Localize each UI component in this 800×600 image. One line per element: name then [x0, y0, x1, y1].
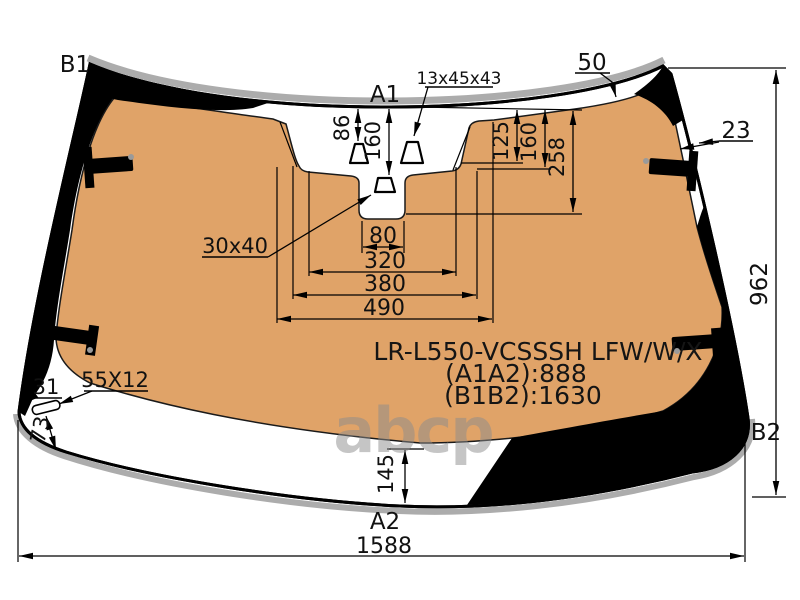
bracket-pin-top-right	[643, 158, 649, 164]
dim-cam-step1: 125	[489, 121, 513, 161]
bracket-pin-bottom-left	[87, 347, 93, 353]
dim-mirror-offset: 160	[361, 121, 385, 161]
dim-slot-width: 80	[369, 224, 397, 249]
dim-cam-step2: 160	[517, 122, 541, 162]
dim-sensor-size: 13x45x43	[416, 69, 501, 89]
marker-a2: A2	[370, 509, 400, 535]
dim-bracket-size: 55X12	[81, 368, 149, 392]
marker-b2: B2	[751, 420, 781, 446]
marker-b1: B1	[60, 52, 90, 78]
dim-width-320: 320	[364, 249, 406, 274]
dim-width-bottom: 1588	[356, 534, 412, 559]
dim-mirror-size: 30x40	[202, 234, 268, 258]
marker-a1: A1	[370, 82, 400, 108]
dim-sensor-offset: 86	[330, 115, 354, 142]
dim-width-380: 380	[364, 272, 406, 297]
watermark: abcp	[333, 394, 492, 467]
dim-width-490: 490	[363, 296, 405, 321]
dim-top-edge-offset: 50	[577, 50, 606, 76]
dim-corner-gap: 31	[33, 375, 60, 399]
diagram-canvas: B1 A1 B2 A2 50 13x45x43 23 962 1588 145 …	[0, 0, 800, 600]
windshield-diagram: B1 A1 B2 A2 50 13x45x43 23 962 1588 145 …	[0, 0, 800, 600]
dim-cam-step3: 258	[545, 137, 569, 177]
mirror-mount-symbol	[375, 178, 395, 192]
dim-edge-band: 23	[721, 118, 750, 144]
bracket-pin-top-left	[128, 154, 134, 160]
dim-height-right: 962	[747, 262, 773, 306]
